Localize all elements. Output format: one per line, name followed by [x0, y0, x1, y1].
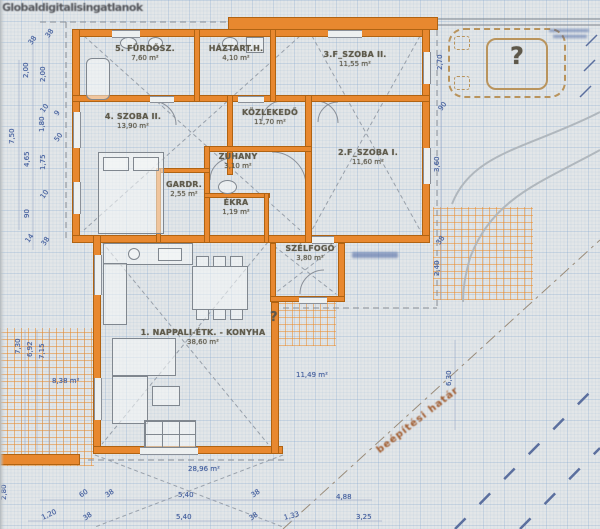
room-haztart-name: HÁZTART.H. [200, 44, 272, 53]
chair-icon [196, 256, 209, 267]
room-zuhany-name: ZUHANY [208, 152, 268, 161]
dim-label: 7,50 [8, 128, 16, 144]
room-szelfogo-name: SZÉLFOGÓ [276, 244, 344, 253]
pillow2-icon [133, 157, 159, 171]
room-kozlekedo-name: KÖZLEKEDŐ [225, 108, 315, 117]
room-kozlekedo-area: 11,70 m² [225, 118, 315, 126]
room-nappali-area: 38,60 m² [128, 338, 278, 346]
car-wheel-icon [454, 36, 470, 50]
watermark-text: Globaldigitalisingatlanok [2, 1, 143, 14]
room-szoba3f-area: 11,55 m² [300, 60, 410, 68]
chair-icon [230, 256, 243, 267]
kitchen-counter2-icon [103, 263, 127, 325]
window-left-2 [73, 182, 81, 214]
dining-table-icon [192, 266, 248, 310]
room-szoba4: 4. SZOBA II. 13,90 m² [78, 112, 188, 130]
kitchen-sink-icon [128, 248, 140, 260]
car-icon: ? [448, 28, 566, 98]
window-right-2 [423, 148, 431, 184]
coffee-table-icon [152, 386, 180, 406]
illegible-text-smudge [553, 35, 587, 38]
stove-icon [158, 248, 182, 261]
dim-label: 3,25 [356, 513, 372, 521]
dim-label: 4,88 [336, 493, 352, 501]
room-furdo-name: 5. FÜRDŐSZ. [95, 44, 195, 53]
pillow-icon [103, 157, 129, 171]
wall-ekra-right [264, 193, 269, 243]
room-ekra-area: 1,19 m² [210, 208, 262, 216]
plan-question-mark: ? [270, 310, 278, 325]
illegible-text-smudge [352, 252, 398, 258]
dim-label: 90 [23, 209, 31, 218]
door-gap-entrance [299, 297, 327, 304]
room-szoba2f: 2.F_SZOBA I. 11,60 m² [318, 148, 418, 166]
window-living-bottom [140, 447, 198, 455]
building-limit-line [283, 240, 600, 529]
area-note-left: 8,38 m² [52, 377, 79, 385]
chair-icon [230, 309, 243, 320]
street-line [438, 19, 600, 25]
driveway-curve [452, 112, 600, 302]
car-wheel-icon [454, 76, 470, 90]
car-question-mark: ? [510, 42, 524, 70]
media-cabinet-icon [144, 420, 196, 448]
chair-icon [196, 309, 209, 320]
dim-label: 2,70 [436, 54, 444, 70]
room-haztart: HÁZTART.H. 4,10 m² [200, 44, 272, 62]
door-gap-corridor [238, 96, 264, 103]
room-szoba3f-name: 3.F_SZOBA II. [300, 50, 410, 59]
dim-label: 1,80 [38, 116, 46, 132]
window-right-1 [423, 52, 431, 84]
window-living-left-2 [94, 378, 102, 420]
room-szelfogo-area: 3,80 m² [276, 254, 344, 262]
door-gap-szelfogo [312, 236, 334, 244]
room-gardrob: GARDR. 2,55 m² [160, 180, 208, 198]
dim-label: 6,92 [26, 341, 34, 357]
dim-label: 1,75 [39, 154, 47, 170]
dim-label: 3,60 [433, 156, 441, 172]
dim-label: 4,65 [23, 151, 31, 167]
chair-icon [213, 256, 226, 267]
dim-label: 2,00 [22, 62, 30, 78]
room-nappali: 1. NAPPALI-ÉTK. - KONYHA 38,60 m² [128, 328, 278, 346]
door-gap-bath [150, 96, 174, 103]
area-note-terrace: 28,96 m² [188, 465, 220, 473]
room-szoba3f: 3.F_SZOBA II. 11,55 m² [300, 50, 410, 68]
room-gardrob-area: 2,55 m² [160, 190, 208, 198]
dim-label: 6,30 [445, 370, 453, 386]
room-nappali-name: 1. NAPPALI-ÉTK. - KONYHA [128, 328, 278, 337]
room-furdo: 5. FÜRDŐSZ. 7,60 m² [95, 44, 195, 62]
sofa2-icon [112, 376, 148, 424]
wall-gardrob-top [156, 168, 210, 173]
room-szoba2f-name: 2.F_SZOBA I. [318, 148, 418, 157]
wall-garden-bottom-left [0, 454, 80, 465]
boundary-ticks [580, 35, 597, 97]
dim-label: 2,00 [39, 66, 47, 82]
wall-bath-haztart [194, 29, 200, 102]
dim-label: 5,40 [178, 491, 194, 499]
room-kozlekedo: KÖZLEKEDŐ 11,70 m² [225, 108, 315, 126]
room-ekra: ÉKRA 1,19 m² [210, 198, 262, 216]
dim-label: 2,40 [433, 260, 441, 276]
plot-boundary-dashes [455, 382, 600, 529]
wall-band-lower [72, 235, 430, 243]
room-szoba4-area: 13,90 m² [78, 122, 188, 130]
room-zuhany-area: 3,10 m² [208, 162, 268, 170]
room-zuhany: ZUHANY 3,10 m² [208, 152, 268, 170]
room-szoba2f-area: 11,60 m² [318, 158, 418, 166]
dim-label: 7,30 [14, 338, 22, 354]
bathtub-icon [86, 58, 110, 100]
dim-label: 7,15 [38, 343, 46, 359]
toilet-zuhany-icon [218, 180, 237, 194]
floor-plan-canvas: ? 5. FÜRDŐSZ. 7,60 m² HÁZTART.H. 4,10 m²… [0, 0, 600, 529]
window-szoba3 [328, 30, 362, 38]
chair-icon [213, 309, 226, 320]
room-ekra-name: ÉKRA [210, 198, 262, 207]
room-furdo-area: 7,60 m² [95, 54, 195, 62]
room-gardrob-name: GARDR. [160, 180, 208, 189]
room-haztart-area: 4,10 m² [200, 54, 272, 62]
dim-label: 5,40 [176, 513, 192, 521]
room-szelfogo: SZÉLFOGÓ 3,80 m² [276, 244, 344, 262]
room-szoba4-name: 4. SZOBA II. [78, 112, 188, 121]
illegible-text-smudge [549, 29, 589, 32]
area-note-right: 11,49 m² [296, 371, 328, 379]
wall-haztart-szoba3 [270, 29, 276, 102]
scan-edge-shadow [0, 0, 4, 529]
window-living-left-1 [94, 255, 102, 295]
